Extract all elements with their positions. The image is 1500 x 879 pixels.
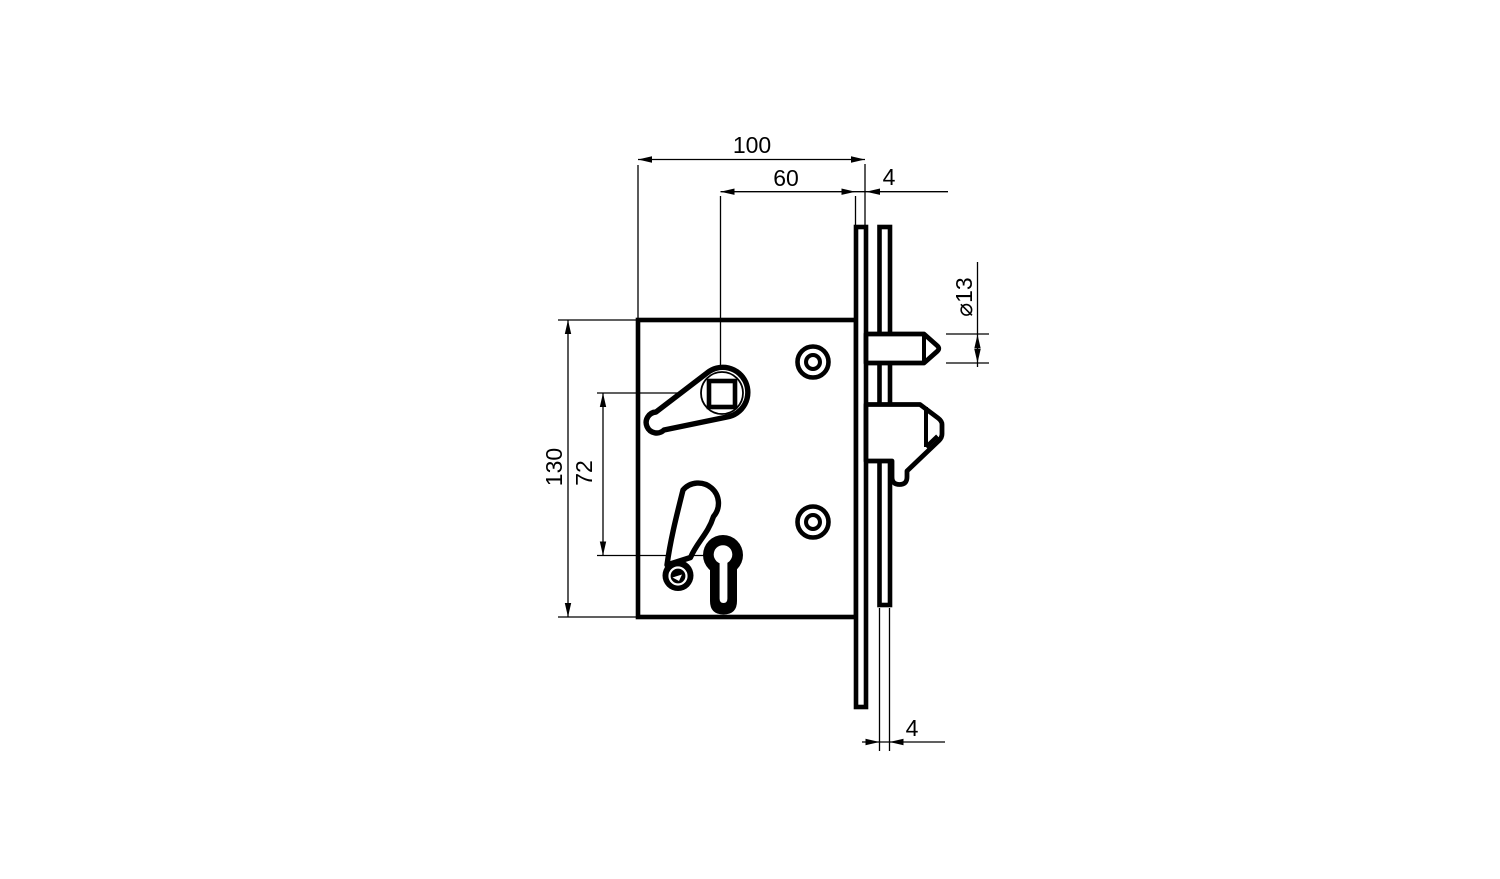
dim-label-backset: 60	[773, 165, 799, 191]
faceplate-inner	[856, 227, 866, 707]
dim-label-body-height: 130	[541, 448, 567, 486]
dim-label-faceplate-bottom: 4	[906, 715, 919, 741]
screw-post-top	[798, 347, 829, 378]
lock-technical-drawing: 100 60 4 130 72 ⌀13 4	[0, 0, 1500, 879]
dim-label-top-width: 100	[733, 132, 771, 158]
lever-pivot	[663, 560, 694, 591]
drawing-canvas: 100 60 4 130 72 ⌀13 4	[0, 0, 1500, 879]
dim-label-spindle-to-cylinder: 72	[571, 460, 597, 486]
latch-bolt	[866, 334, 939, 363]
screw-post-bottom	[798, 507, 829, 538]
spindle-square-hole	[709, 381, 735, 407]
dim-label-faceplate-top: 4	[883, 164, 896, 190]
dim-label-latch-diameter: ⌀13	[951, 277, 977, 316]
